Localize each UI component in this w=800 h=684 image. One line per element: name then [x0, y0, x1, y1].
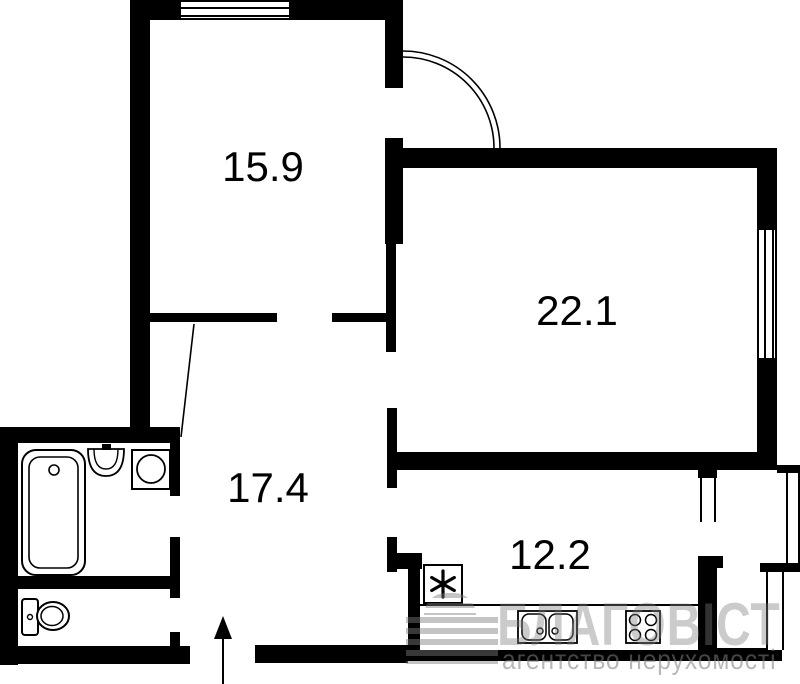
- washbasin-icon: [88, 449, 124, 476]
- toilet-bowl-inner: [41, 607, 63, 626]
- window-top: [179, 0, 291, 20]
- wall: [760, 563, 800, 572]
- entrance-arrow-head: [214, 616, 232, 639]
- wall: [390, 148, 777, 168]
- washing-machine-icon: [132, 450, 170, 489]
- door-leaf: [181, 324, 194, 437]
- balcony-glazing-upper: [786, 473, 800, 563]
- window-right: [757, 228, 777, 360]
- wall: [713, 556, 723, 568]
- wall: [386, 244, 396, 352]
- wall: [757, 360, 777, 452]
- wall: [0, 427, 180, 443]
- room-area-label-15-9: 15.9: [222, 146, 304, 188]
- room-area-label-12-2: 12.2: [509, 534, 591, 576]
- door-swing-arc: [403, 57, 494, 148]
- window-frame: [764, 230, 774, 358]
- window-frame: [181, 7, 289, 17]
- balcony-door-glazing: [700, 478, 716, 522]
- toilet-tank: [22, 599, 38, 635]
- watermark-logo-icon: [424, 593, 476, 615]
- bathtub-inner: [29, 457, 78, 568]
- room-area-label-17-4: 17.4: [227, 467, 309, 509]
- wall: [0, 646, 190, 664]
- watermark-logo-icon: [406, 617, 498, 664]
- watermark-subtitle-text: агентство нерухомості: [502, 644, 776, 676]
- wall: [0, 576, 180, 589]
- wall: [170, 632, 180, 647]
- wall: [170, 443, 180, 496]
- toilet-button: [28, 615, 33, 620]
- wall: [0, 427, 18, 665]
- room-area-label-22-1: 22.1: [536, 290, 618, 332]
- wall: [332, 313, 395, 322]
- bathtub-drain: [49, 465, 59, 475]
- floor-plan: 15.9 22.1 17.4 12.2 БЛАГОВІСТ агентство …: [0, 0, 800, 684]
- washing-machine-drum: [137, 455, 165, 483]
- wall: [387, 408, 397, 488]
- wall: [698, 467, 717, 478]
- wall: [387, 452, 777, 470]
- wall: [150, 313, 277, 322]
- wall: [757, 148, 777, 228]
- wall: [130, 0, 150, 437]
- bathtub-icon: [22, 450, 85, 575]
- washbasin-inner: [94, 449, 118, 469]
- washbasin-tap: [102, 444, 111, 450]
- wall: [385, 0, 403, 88]
- wall: [255, 645, 408, 663]
- door-swing-arc: [403, 51, 500, 148]
- toilet-bowl: [37, 602, 69, 630]
- wall: [777, 465, 800, 473]
